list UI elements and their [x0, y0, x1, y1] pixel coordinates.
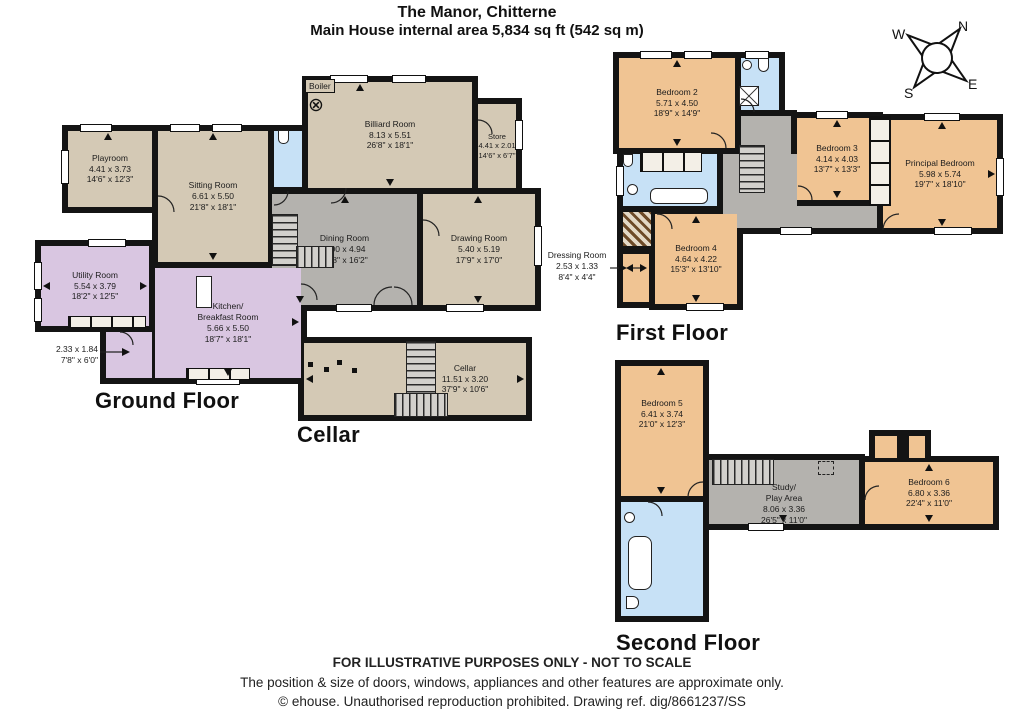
compass-rose-icon: N S W E: [880, 8, 1000, 108]
room-dims-metric: 5.71 x 4.50: [656, 98, 698, 109]
window: [80, 124, 112, 132]
toilet-icon: [623, 154, 633, 167]
window: [336, 304, 372, 312]
room-bedroom4: Bedroom 4 4.64 x 4.22 15'3" x 13'10": [655, 214, 737, 304]
room-dims-metric: 2.33 x 1.84: [28, 344, 98, 355]
room-drawing-room: Drawing Room 5.40 x 5.19 17'9" x 17'0": [423, 194, 535, 305]
window: [34, 298, 42, 322]
room-dims-imperial: 14'6" x 6'7": [479, 151, 516, 161]
stairs-ground: [272, 214, 298, 266]
room-name: Bedroom 5: [641, 398, 683, 409]
toilet-icon: [278, 130, 289, 144]
window: [616, 166, 624, 196]
room-dims-metric: 5.98 x 5.74: [919, 169, 961, 180]
room-dims-imperial: 8'4" x 4'4": [544, 272, 610, 283]
floorplan-canvas: The Manor, Chitterne Main House internal…: [0, 0, 1024, 724]
utility-appliances: [68, 316, 146, 328]
room-name: Drawing Room: [451, 233, 507, 244]
room-dims-imperial: 22'4" x 11'0": [906, 498, 952, 509]
lobby-dim-label: 2.33 x 1.84 7'8" x 6'0": [28, 344, 98, 366]
room-dims-metric: 8.13 x 5.51: [369, 130, 411, 141]
room-bedroom6: Bedroom 6 6.80 x 3.36 22'4" x 11'0": [865, 462, 993, 524]
window: [924, 113, 960, 121]
room-dims-imperial: 19'7" x 18'10": [914, 179, 965, 190]
window: [534, 226, 542, 266]
sink-icon: [624, 512, 635, 523]
room-dims-imperial: 15'3" x 13'10": [670, 264, 721, 275]
window: [61, 150, 69, 184]
property-name: The Manor, Chitterne: [0, 4, 954, 22]
window: [392, 75, 426, 83]
room-name: Bedroom 2: [656, 87, 698, 98]
bathtub-icon: [650, 188, 708, 204]
room-playroom: Playroom 4.41 x 3.73 14'6" x 12'3": [68, 131, 152, 207]
room-dims-imperial: 18'9" x 14'9": [654, 108, 701, 119]
room-dressing: [623, 254, 649, 302]
room-dims-metric: 4.41 x 3.73: [89, 164, 131, 175]
room-cupboard-hatched: [623, 212, 651, 246]
window: [996, 158, 1004, 196]
window: [640, 51, 672, 59]
room-bedroom5: Bedroom 5 6.41 x 3.74 21'0" x 12'3": [621, 366, 703, 496]
room-closet2: [909, 436, 925, 458]
room-dims-imperial: 17'9" x 17'0": [456, 255, 503, 266]
wardrobe-run: [869, 116, 891, 206]
shower-icon: [739, 86, 759, 106]
wardrobe-cells: [640, 152, 702, 172]
window: [88, 239, 126, 247]
room-name: Bedroom 6: [908, 477, 950, 488]
stairs-second: [712, 459, 774, 485]
room-dims-imperial: 21'8" x 18'1": [190, 202, 237, 213]
room-dims-metric: 2.53 x 1.33: [544, 261, 610, 272]
stairs-ground-lower: [296, 246, 334, 268]
room-name: Utility Room: [72, 270, 118, 281]
room-name: Study/ Play Area: [766, 482, 802, 504]
toilet-icon: [626, 596, 639, 609]
room-name: Billiard Room: [365, 119, 416, 130]
plan-footer: FOR ILLUSTRATIVE PURPOSES ONLY - NOT TO …: [0, 653, 1024, 711]
room-dims-metric: 8.06 x 3.36: [763, 504, 805, 515]
loft-hatch: [818, 461, 834, 475]
room-name: Dressing Room: [544, 250, 610, 261]
kitchen-cooker: [186, 368, 250, 380]
room-dims-imperial: 26'8" x 18'1": [367, 140, 414, 151]
room-dims-metric: 4.64 x 4.22: [675, 254, 717, 265]
sink-icon: [742, 60, 752, 70]
stairs-first: [739, 145, 765, 193]
window: [515, 120, 523, 150]
compass-north-label: N: [958, 18, 968, 34]
copyright-line: © ehouse. Unauthorised reproduction proh…: [0, 692, 1024, 711]
room-dims-imperial: 7'8" x 6'0": [28, 355, 98, 366]
room-name: Playroom: [92, 153, 128, 164]
disclaimer-line2: The position & size of doors, windows, a…: [0, 673, 1024, 692]
kitchen-range: [196, 276, 212, 308]
room-kitchen: Kitchen/ Breakfast Room 5.66 x 5.50 18'7…: [155, 268, 301, 378]
room-name: Sitting Room: [189, 180, 238, 191]
room-utility-room: Utility Room 5.54 x 3.79 18'2" x 12'5": [41, 246, 149, 326]
window: [170, 124, 200, 132]
boiler-symbol-icon: ⊗: [308, 96, 324, 115]
room-dims-imperial: 18'2" x 12'5": [72, 291, 119, 302]
sink-icon: [627, 184, 638, 195]
room-name: Dining Room: [320, 233, 369, 244]
room-name: Bedroom 4: [675, 243, 717, 254]
room-dims-metric: 5.40 x 5.19: [458, 244, 500, 255]
plan-title: The Manor, Chitterne Main House internal…: [0, 4, 954, 40]
bathtub-icon: [628, 536, 652, 590]
cellar-post: [324, 367, 329, 372]
room-dims-imperial: 21'0" x 12'3": [639, 419, 686, 430]
window: [684, 51, 712, 59]
room-dims-metric: 5.54 x 3.79: [74, 281, 116, 292]
cellar-label: Cellar: [297, 422, 360, 448]
room-bedroom2: Bedroom 2 5.71 x 4.50 18'9" x 14'9": [619, 58, 735, 148]
room-dims-metric: 6.80 x 3.36: [908, 488, 950, 499]
room-name: Bedroom 3: [816, 143, 858, 154]
first-floor-label: First Floor: [616, 320, 728, 346]
room-dims-metric: 4.14 x 4.03: [816, 154, 858, 165]
room-dims-metric: 6.61 x 5.50: [192, 191, 234, 202]
compass-east-label: E: [968, 76, 977, 92]
room-dims-imperial: 18'7" x 18'1": [205, 334, 252, 345]
room-dims-imperial: 13'7" x 13'3": [814, 164, 861, 175]
room-closet1: [875, 436, 897, 458]
room-sitting-room: Sitting Room 6.61 x 5.50 21'8" x 18'1": [158, 131, 268, 262]
window: [748, 523, 784, 531]
window: [686, 303, 724, 311]
compass-west-label: W: [892, 26, 906, 42]
toilet-icon: [758, 58, 769, 72]
room-corridor: [791, 206, 877, 228]
window: [212, 124, 242, 132]
room-dims-imperial: 14'6" x 12'3": [87, 174, 134, 185]
window: [446, 304, 484, 312]
disclaimer-line1: FOR ILLUSTRATIVE PURPOSES ONLY - NOT TO …: [0, 653, 1024, 673]
room-dims-metric: 5.66 x 5.50: [207, 323, 249, 334]
ground-floor-label: Ground Floor: [95, 388, 239, 414]
compass-south-label: S: [904, 85, 913, 101]
window: [34, 262, 42, 290]
room-lobby: [106, 332, 152, 378]
window: [330, 75, 368, 83]
window: [934, 227, 972, 235]
room-bedroom3: Bedroom 3 4.14 x 4.03 13'7" x 13'3": [797, 118, 877, 200]
window: [816, 111, 848, 119]
boiler-label: Boiler: [305, 79, 335, 93]
room-name: Store: [488, 132, 506, 142]
cellar-post: [352, 368, 357, 373]
internal-area: Main House internal area 5,834 sq ft (54…: [0, 22, 954, 40]
stairs-cellar-base: [394, 393, 448, 417]
room-principal-bedroom: Principal Bedroom 5.98 x 5.74 19'7" x 18…: [883, 120, 997, 228]
room-dims-metric: 4.41 x 2.01: [478, 141, 515, 151]
room-name: Principal Bedroom: [905, 158, 974, 169]
room-billiard-room: Billiard Room 8.13 x 5.51 26'8" x 18'1": [308, 82, 472, 188]
stairs-cellar: [406, 341, 436, 395]
room-dims-metric: 6.41 x 3.74: [641, 409, 683, 420]
room-store: Store 4.41 x 2.01 14'6" x 6'7": [478, 104, 516, 188]
cellar-post: [337, 360, 342, 365]
dressing-room-label: Dressing Room 2.53 x 1.33 8'4" x 4'4": [544, 250, 610, 283]
window: [780, 227, 812, 235]
cellar-post: [308, 362, 313, 367]
